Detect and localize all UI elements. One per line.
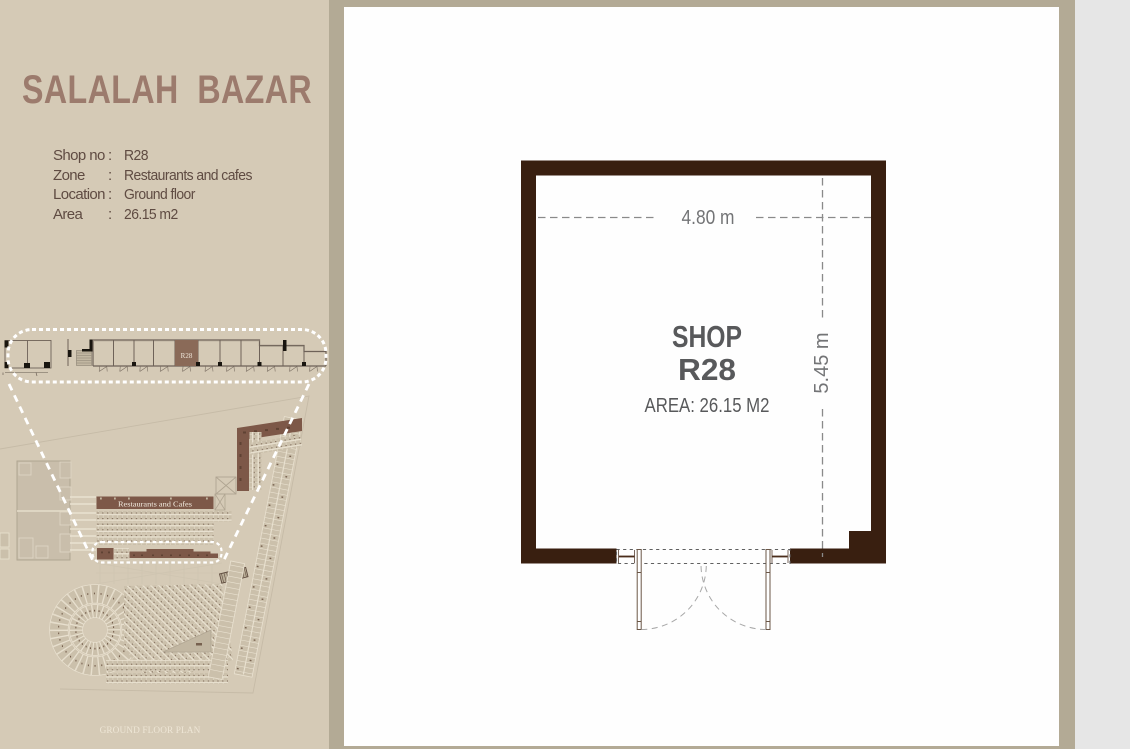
- svg-text:AREA: 26.15 M2: AREA: 26.15 M2: [645, 395, 770, 417]
- svg-text:4.80 m: 4.80 m: [682, 207, 735, 229]
- svg-text:R28: R28: [181, 352, 193, 360]
- svg-text:R28: R28: [678, 352, 736, 387]
- svg-text:SHOP: SHOP: [672, 319, 742, 354]
- svg-text:Restaurants and Cafes: Restaurants and Cafes: [118, 502, 192, 509]
- svg-text:5.45 m: 5.45 m: [811, 332, 833, 393]
